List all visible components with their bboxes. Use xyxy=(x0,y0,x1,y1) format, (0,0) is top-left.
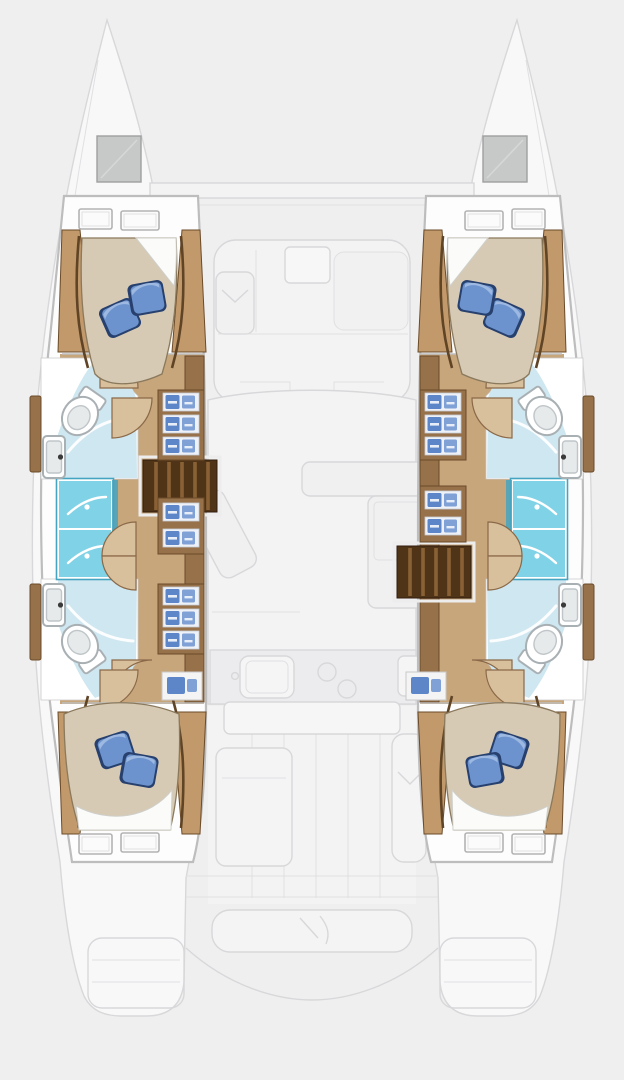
cockpit xyxy=(208,702,426,904)
shelving-port xyxy=(158,390,204,700)
floor-plan xyxy=(0,0,624,1080)
shelf-cubby xyxy=(162,672,202,700)
shelf-unit xyxy=(420,390,466,460)
shelf-cubby xyxy=(406,672,446,700)
galley xyxy=(210,650,432,704)
cockpit-table xyxy=(216,748,292,866)
foredeck-sunpad xyxy=(334,252,408,330)
bow-hatch-port xyxy=(97,136,141,182)
foredeck-seat xyxy=(216,272,254,334)
bow-hatch-starboard xyxy=(483,136,527,182)
shelf-unit xyxy=(158,584,204,654)
shelf-unit xyxy=(420,486,466,542)
foredeck-table xyxy=(285,247,330,283)
saloon-sofa xyxy=(302,462,426,496)
saloon-door-sill xyxy=(224,702,400,734)
floor-plan-canvas xyxy=(0,0,624,1080)
shelf-unit xyxy=(158,498,204,554)
foredeck-lounge xyxy=(214,240,410,402)
shelf-unit xyxy=(158,390,204,460)
companionway-stairs-starboard xyxy=(394,543,474,601)
